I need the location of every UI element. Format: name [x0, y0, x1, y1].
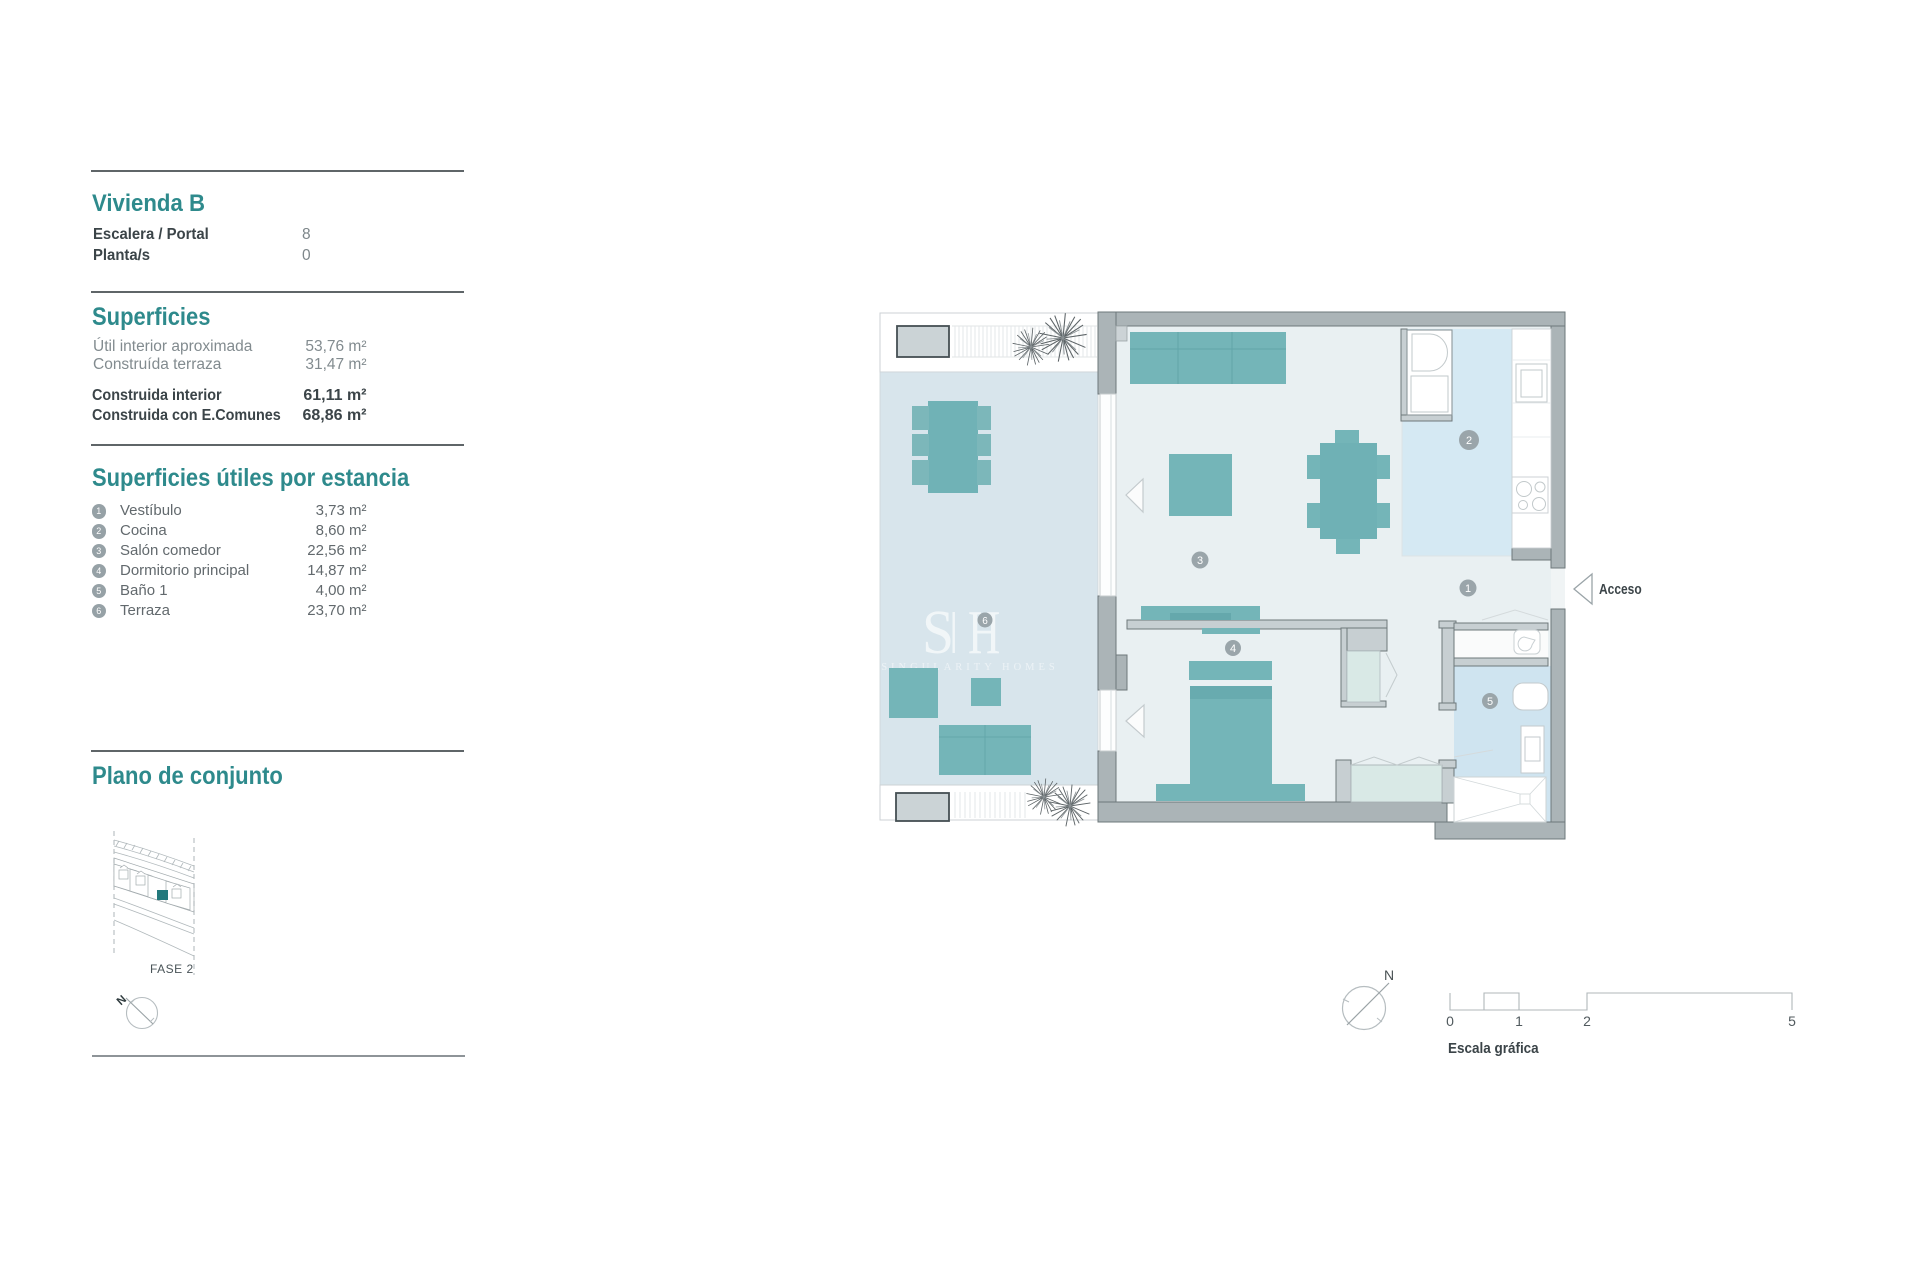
svg-text:N: N	[115, 993, 129, 1007]
svg-text:2: 2	[1466, 435, 1472, 447]
svg-text:0: 0	[1446, 1013, 1454, 1029]
svg-text:1: 1	[1515, 1013, 1523, 1029]
svg-text:2: 2	[1583, 1013, 1591, 1029]
svg-text:N: N	[1384, 967, 1394, 983]
svg-text:S: S	[922, 598, 954, 666]
svg-text:Acceso: Acceso	[1599, 581, 1642, 598]
svg-text:4: 4	[1230, 643, 1236, 655]
svg-text:5: 5	[1487, 696, 1493, 708]
svg-text:5: 5	[1788, 1013, 1796, 1029]
svg-text:6: 6	[982, 616, 988, 627]
svg-text:H: H	[968, 598, 1000, 667]
svg-text:3: 3	[1197, 555, 1203, 567]
svg-text:Escala gráfica: Escala gráfica	[1448, 1040, 1540, 1057]
svg-text:1: 1	[1465, 583, 1471, 595]
